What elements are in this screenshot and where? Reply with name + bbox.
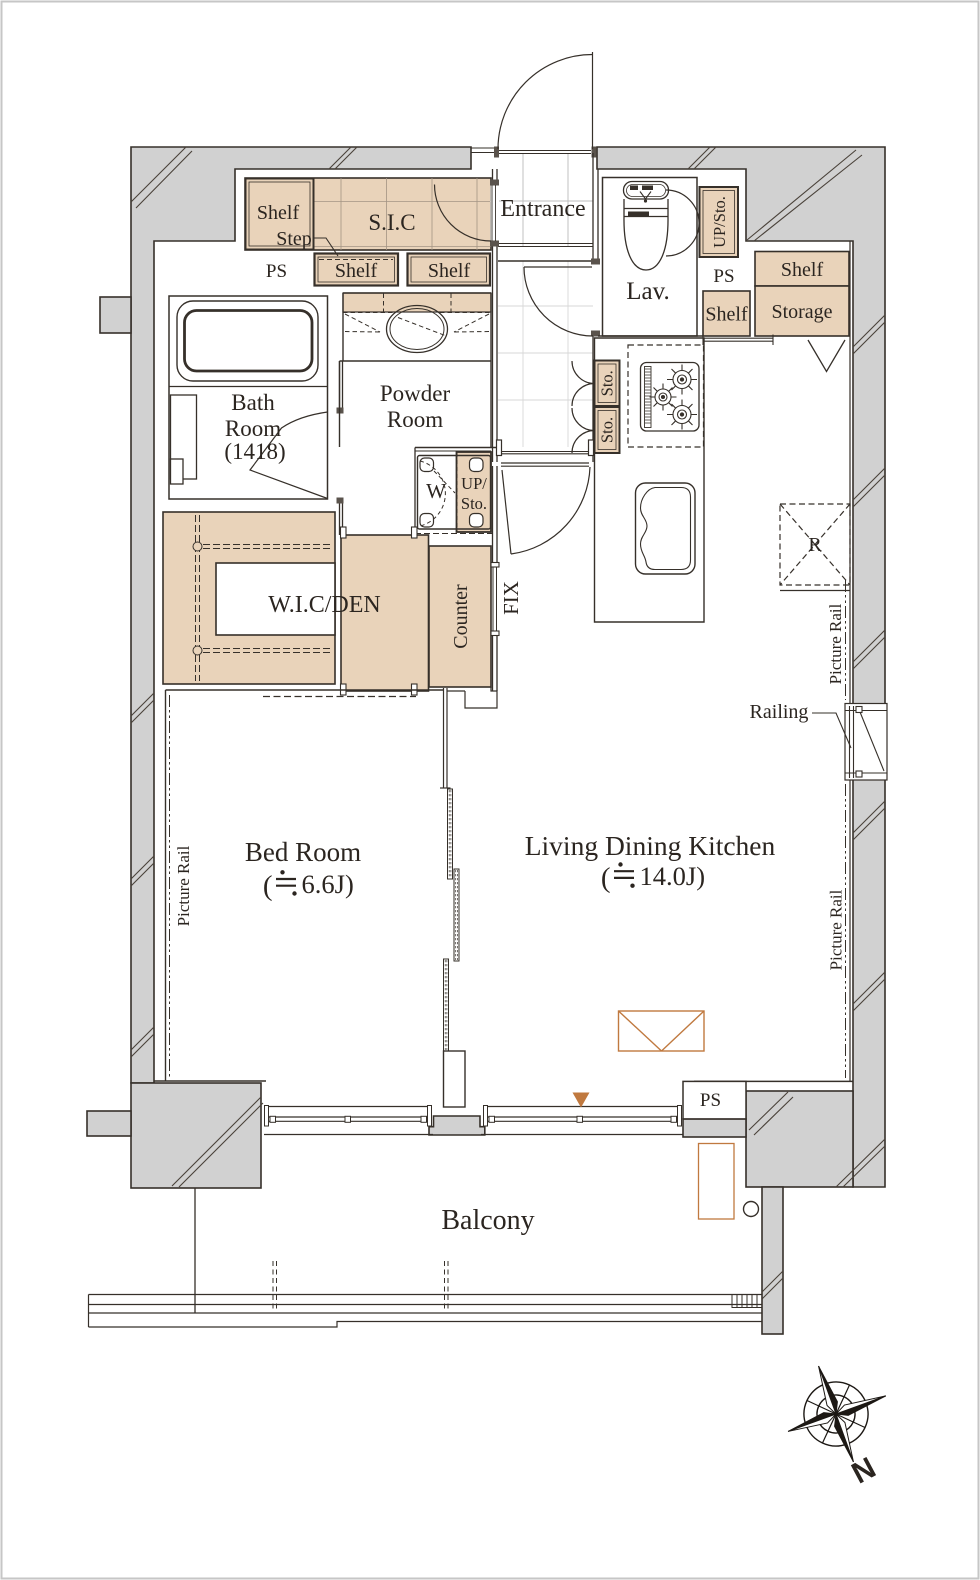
- svg-text:Room: Room: [387, 407, 443, 432]
- svg-text:S.I.C: S.I.C: [368, 210, 415, 235]
- svg-text:Room: Room: [225, 416, 281, 441]
- svg-text:Step: Step: [276, 228, 312, 250]
- svg-text:Shelf: Shelf: [335, 260, 378, 282]
- svg-text:Sto.: Sto.: [598, 417, 617, 443]
- svg-text:14.0J): 14.0J): [640, 861, 706, 891]
- svg-text:PS: PS: [700, 1090, 721, 1111]
- svg-text:Sto.: Sto.: [461, 494, 487, 513]
- svg-text:(: (: [601, 862, 611, 894]
- svg-text:FIX: FIX: [499, 581, 523, 615]
- svg-text:Shelf: Shelf: [257, 202, 300, 224]
- svg-text:Balcony: Balcony: [441, 1205, 534, 1236]
- svg-text:Shelf: Shelf: [428, 260, 471, 282]
- svg-text:W.I.C/DEN: W.I.C/DEN: [268, 592, 380, 618]
- svg-text:(1418): (1418): [224, 439, 285, 464]
- svg-text:6.6J): 6.6J): [302, 869, 354, 899]
- svg-text:Bed Room: Bed Room: [245, 837, 361, 867]
- svg-text:(: (: [263, 870, 273, 902]
- svg-text:W: W: [426, 479, 446, 503]
- svg-text:Shelf: Shelf: [705, 304, 748, 326]
- svg-text:Railing: Railing: [750, 701, 809, 723]
- svg-text:UP/Sto.: UP/Sto.: [710, 196, 729, 248]
- svg-text:Picture Rail: Picture Rail: [827, 889, 846, 970]
- svg-text:Counter: Counter: [450, 584, 472, 649]
- svg-text:Bath: Bath: [231, 390, 275, 415]
- svg-text:PS: PS: [266, 261, 287, 282]
- svg-text:Entrance: Entrance: [500, 196, 585, 222]
- svg-text:Living Dining Kitchen: Living Dining Kitchen: [525, 830, 776, 861]
- svg-text:Shelf: Shelf: [781, 259, 824, 281]
- svg-text:Sto.: Sto.: [598, 370, 617, 396]
- svg-text:Storage: Storage: [771, 301, 832, 323]
- svg-text:UP/: UP/: [461, 474, 487, 493]
- svg-text:Powder: Powder: [380, 381, 451, 406]
- svg-text:Picture Rail: Picture Rail: [174, 845, 193, 926]
- svg-text:Picture Rail: Picture Rail: [826, 603, 845, 684]
- svg-text:R: R: [808, 534, 822, 556]
- svg-text:PS: PS: [713, 266, 734, 287]
- svg-text:Lav.: Lav.: [626, 278, 670, 305]
